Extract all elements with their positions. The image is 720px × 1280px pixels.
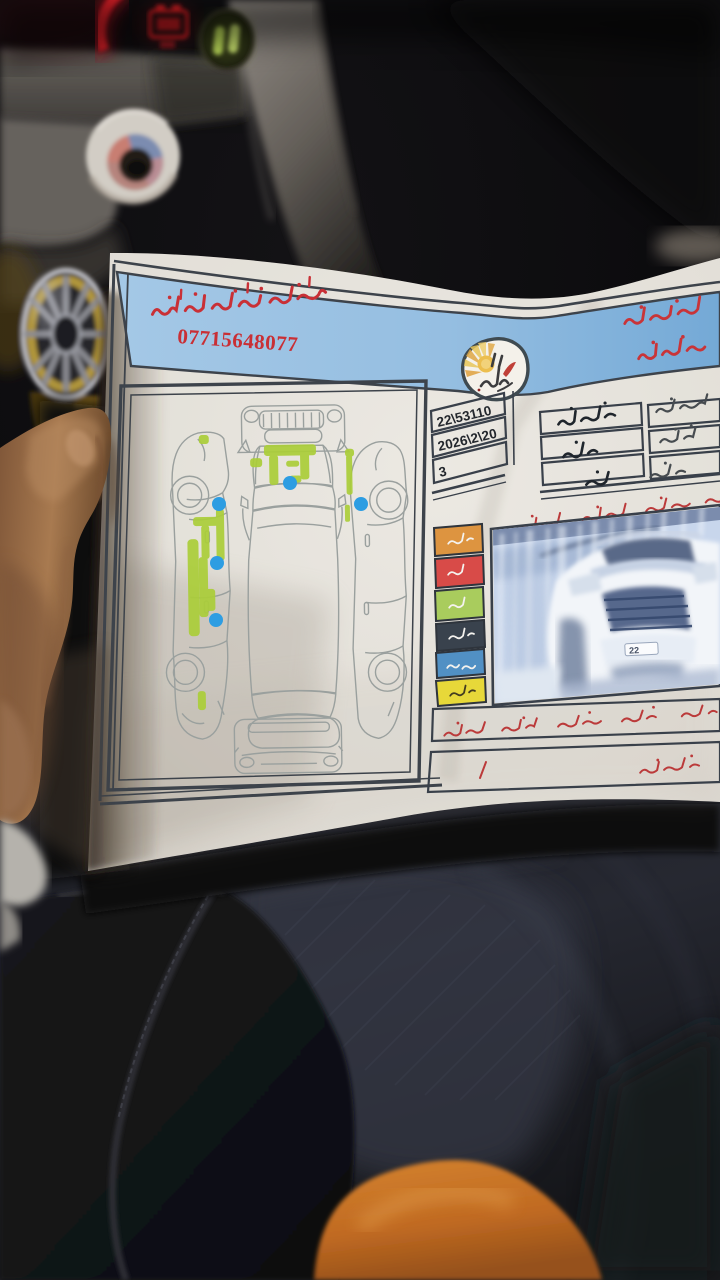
svg-text:22: 22 [629, 645, 640, 656]
